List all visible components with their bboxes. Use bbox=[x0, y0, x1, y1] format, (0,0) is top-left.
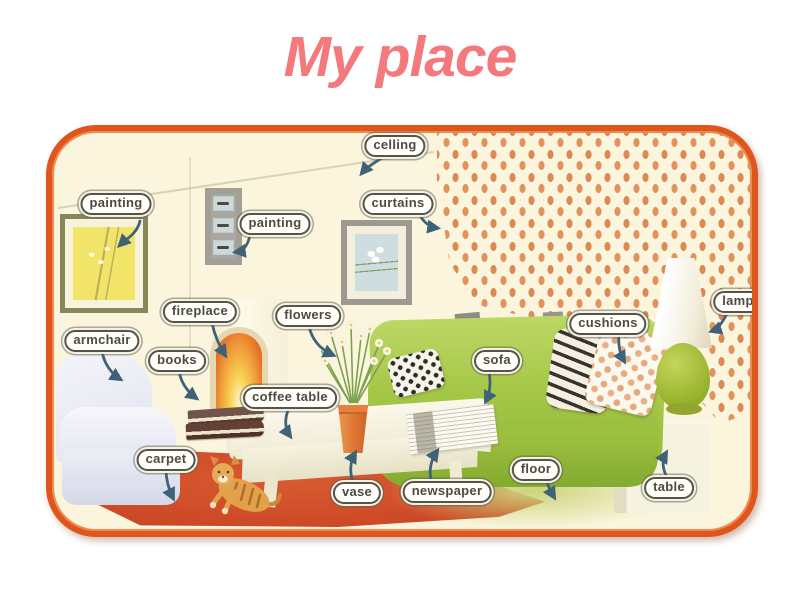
room-scene: celling painting painting curtains firep… bbox=[52, 131, 752, 531]
arrow-armchair bbox=[102, 351, 120, 379]
arrow-vase bbox=[351, 453, 355, 484]
arrow-layer bbox=[52, 131, 752, 531]
arrow-books bbox=[179, 371, 196, 398]
arrow-cushions bbox=[619, 334, 624, 361]
label-lamp: lamp bbox=[713, 291, 758, 313]
arrow-sofa bbox=[486, 371, 490, 401]
label-coffee-table: coffee table bbox=[243, 387, 337, 409]
label-painting-middle: painting bbox=[240, 213, 311, 235]
arrow-curtains bbox=[419, 214, 437, 228]
arrow-newspaper bbox=[430, 451, 437, 484]
arrow-fireplace bbox=[212, 323, 225, 355]
label-fireplace: fireplace bbox=[163, 301, 237, 323]
arrow-coffee-table bbox=[286, 408, 290, 436]
label-flowers: flowers bbox=[275, 305, 341, 327]
label-cushions: cushions bbox=[569, 313, 646, 335]
label-carpet: carpet bbox=[137, 449, 196, 471]
arrow-floor bbox=[546, 479, 554, 497]
arrow-lamp bbox=[712, 312, 728, 331]
label-sofa: sofa bbox=[474, 350, 520, 372]
arrow-painting-left bbox=[120, 221, 140, 245]
label-armchair: armchair bbox=[64, 330, 139, 352]
arrow-ceiling bbox=[362, 158, 382, 173]
room-illustration-frame: celling painting painting curtains firep… bbox=[46, 125, 758, 537]
arrow-painting-middle bbox=[236, 235, 250, 252]
arrow-carpet bbox=[166, 469, 173, 498]
label-books: books bbox=[148, 350, 206, 372]
label-table: table bbox=[644, 477, 694, 499]
label-floor: floor bbox=[512, 459, 560, 481]
arrow-flowers bbox=[309, 326, 333, 355]
label-curtains: curtains bbox=[363, 193, 434, 215]
label-newspaper: newspaper bbox=[403, 481, 492, 503]
arrow-table bbox=[663, 453, 668, 479]
label-vase: vase bbox=[333, 482, 381, 504]
slide: { "title": "My place", "colors": { "titl… bbox=[0, 0, 800, 600]
label-ceiling: celling bbox=[364, 135, 425, 157]
slide-title: My place bbox=[0, 24, 800, 90]
label-painting-left: painting bbox=[81, 193, 152, 215]
